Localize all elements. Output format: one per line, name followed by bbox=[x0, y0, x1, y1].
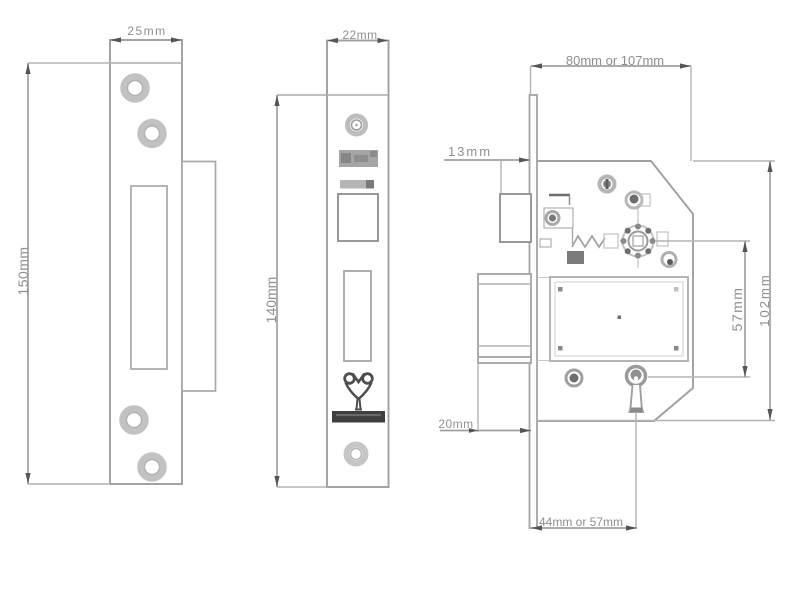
svg-text:140mm: 140mm bbox=[263, 277, 279, 324]
svg-text:57mm: 57mm bbox=[729, 287, 745, 332]
svg-text:20mm: 20mm bbox=[438, 417, 473, 431]
svg-text:13mm: 13mm bbox=[448, 144, 492, 159]
svg-text:22mm: 22mm bbox=[342, 28, 377, 42]
svg-text:80mm or 107mm: 80mm or 107mm bbox=[566, 53, 664, 68]
svg-text:102mm: 102mm bbox=[757, 273, 772, 326]
svg-text:150mm: 150mm bbox=[15, 246, 31, 295]
svg-text:25mm: 25mm bbox=[127, 24, 166, 38]
svg-text:44mm or 57mm: 44mm or 57mm bbox=[539, 515, 623, 529]
